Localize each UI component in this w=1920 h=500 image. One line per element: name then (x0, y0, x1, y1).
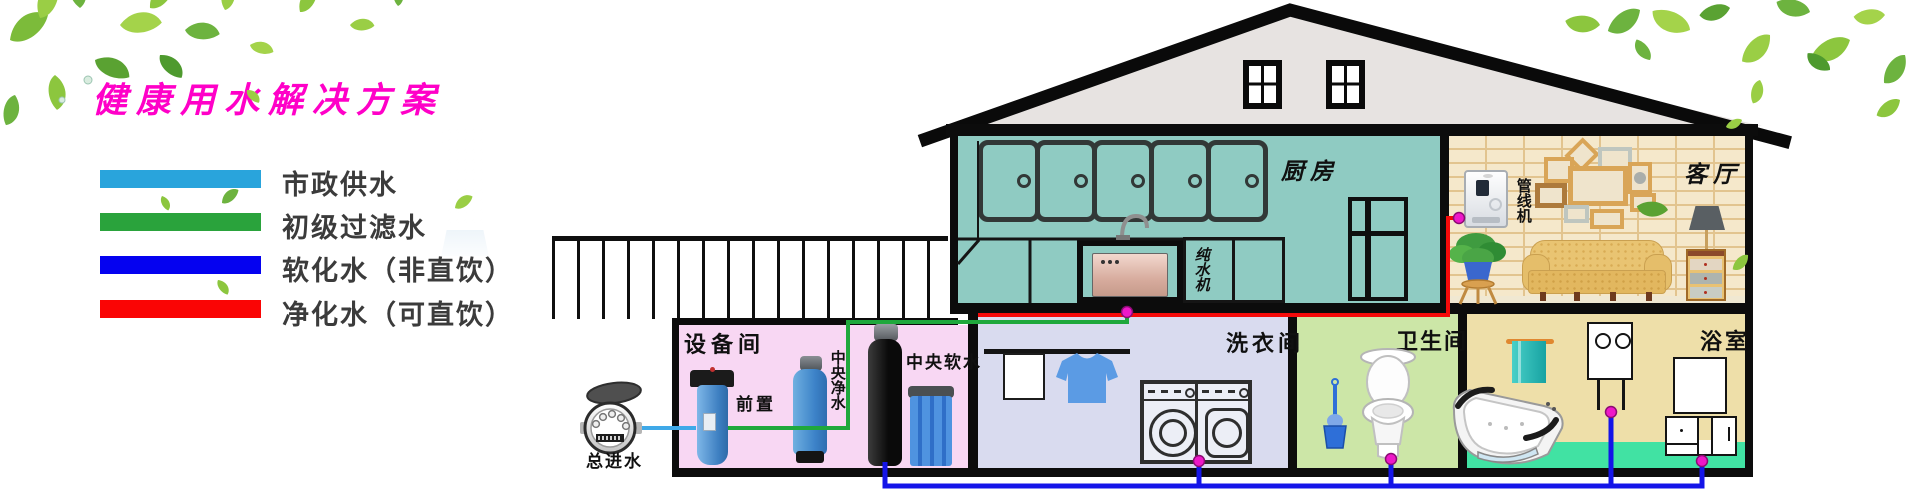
banner: 健康用水解决方案 市政供水 初级过滤水 软化水（非直饮） 净化水（可直饮） 总进… (0, 0, 1920, 500)
leaf-cluster-top-left (0, 0, 407, 128)
leaf-cluster-top-right (1563, 0, 1914, 120)
water-droplet (59, 97, 65, 103)
water-droplet (84, 76, 92, 84)
scattered-leaves (160, 86, 1752, 296)
leaves-decoration (0, 0, 1920, 500)
